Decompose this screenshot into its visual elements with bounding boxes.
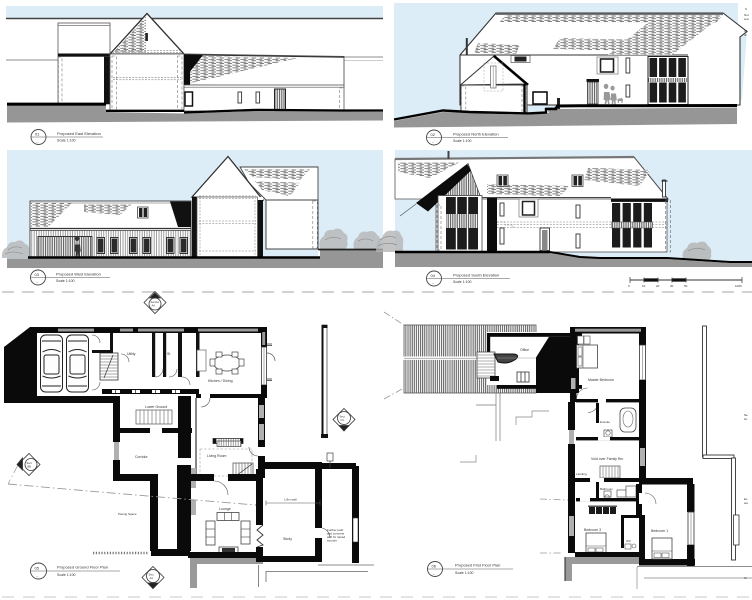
svg-text:S: S	[745, 7, 747, 11]
svg-text:Corridor: Corridor	[135, 455, 148, 459]
svg-text:30: 30	[670, 284, 674, 288]
svg-text:10: 10	[642, 284, 646, 288]
svg-text:BB: BB	[28, 465, 32, 469]
svg-text:--: --	[36, 281, 38, 285]
svg-text:--: --	[432, 282, 434, 286]
svg-text:Proposed Ground Floor Plan: Proposed Ground Floor Plan	[57, 565, 108, 570]
svg-text:Proposed South Elevation: Proposed South Elevation	[453, 272, 499, 277]
svg-text:--: --	[37, 140, 39, 144]
svg-text:Scale 1:100: Scale 1:100	[57, 139, 76, 143]
svg-text:Study: Study	[283, 537, 292, 541]
svg-text:Master Bedroom: Master Bedroom	[588, 378, 614, 382]
svg-text:Lounge: Lounge	[219, 507, 231, 511]
svg-text:St: St	[167, 352, 170, 356]
svg-text:Void over Family Rm: Void over Family Rm	[591, 457, 623, 461]
svg-text:Bedroom 3: Bedroom 3	[584, 528, 601, 532]
svg-text:Landing: Landing	[576, 472, 587, 476]
svg-text:Proposed West Elevation: Proposed West Elevation	[56, 271, 101, 276]
svg-text:50: 50	[684, 284, 688, 288]
svg-text:1.8m wall: 1.8m wall	[284, 498, 297, 502]
svg-text:Paving Space: Paving Space	[118, 512, 137, 516]
svg-text:WC: WC	[626, 539, 632, 543]
svg-text:Scale 1:100: Scale 1:100	[453, 139, 472, 143]
svg-text:Section: Section	[151, 300, 160, 304]
svg-text:bo: bo	[744, 417, 748, 421]
svg-text:Scale 1:100: Scale 1:100	[455, 571, 474, 575]
svg-text:Sect: Sect	[340, 415, 345, 419]
svg-text:Scale 1:100: Scale 1:100	[56, 279, 75, 283]
svg-text:Scale 1:100: Scale 1:100	[453, 280, 472, 284]
svg-text:Si: Si	[744, 576, 747, 580]
svg-text:sca: sca	[744, 17, 749, 21]
svg-text:dr: dr	[744, 33, 747, 37]
svg-text:wa: wa	[744, 501, 748, 505]
svg-text:--: --	[432, 141, 434, 145]
svg-text:Sect: Sect	[149, 573, 154, 577]
svg-text:AA: AA	[150, 576, 154, 580]
svg-text:100ft: 100ft	[735, 284, 742, 288]
svg-text:Utility: Utility	[127, 352, 136, 356]
svg-text:04: 04	[431, 273, 436, 278]
svg-text:20: 20	[656, 284, 660, 288]
svg-text:Lower Ground: Lower Ground	[145, 405, 167, 409]
svg-text:--: --	[36, 574, 38, 578]
svg-text:01: 01	[35, 132, 40, 137]
svg-text:05: 05	[35, 566, 40, 571]
svg-text:Proposed North Elevation: Proposed North Elevation	[453, 131, 499, 136]
svg-text:--: --	[433, 572, 435, 576]
svg-text:Living Room: Living Room	[207, 454, 227, 458]
svg-text:CC: CC	[341, 418, 345, 422]
svg-text:Sect: Sect	[27, 461, 32, 465]
svg-text:Scale 1:100: Scale 1:100	[57, 573, 76, 577]
svg-text:Bathroom: Bathroom	[600, 487, 614, 491]
svg-text:02: 02	[431, 132, 436, 137]
svg-text:03: 03	[35, 272, 40, 277]
svg-text:Bedroom 1: Bedroom 1	[651, 529, 668, 533]
svg-text:Proposed First Floor Plan: Proposed First Floor Plan	[455, 563, 500, 568]
svg-text:bounds: bounds	[327, 539, 337, 543]
svg-text:Office: Office	[520, 348, 529, 352]
svg-text:Proposed East Elevation: Proposed East Elevation	[57, 131, 101, 136]
svg-text:Ensuite: Ensuite	[600, 420, 610, 424]
svg-text:Kitchen / Dining: Kitchen / Dining	[208, 379, 233, 383]
svg-text:AA: AA	[152, 304, 156, 308]
svg-text:06: 06	[432, 564, 437, 569]
